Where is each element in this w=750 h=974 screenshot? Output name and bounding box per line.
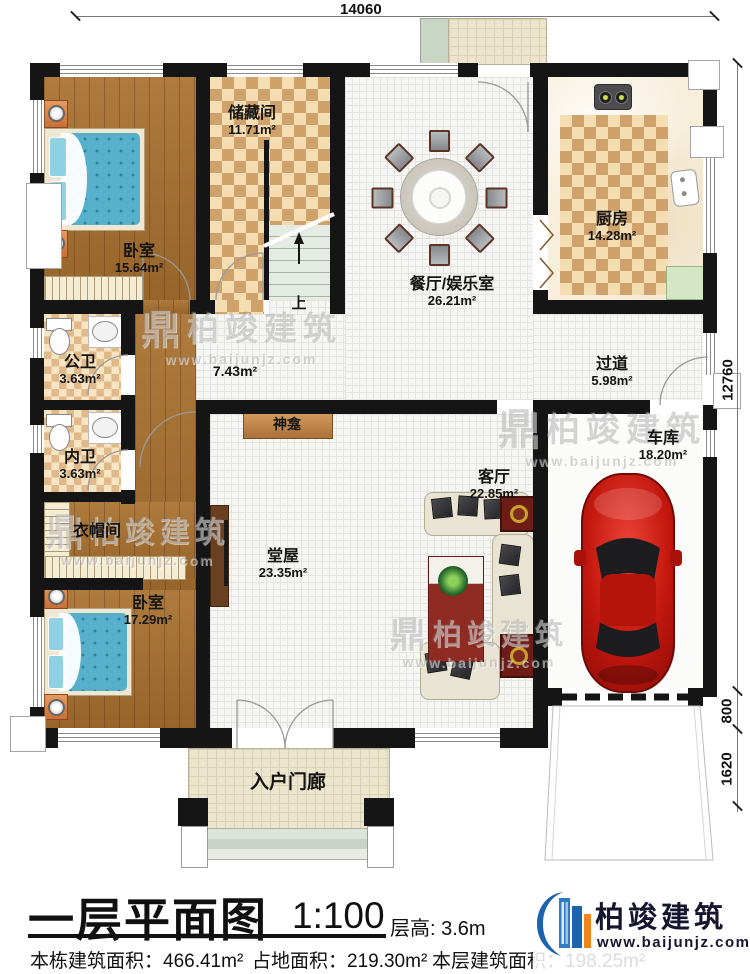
brand-url: www.baijunjz.com — [597, 934, 750, 951]
wall — [533, 77, 548, 215]
wall — [196, 77, 210, 314]
room-name: 厨房 — [588, 211, 636, 229]
window — [227, 63, 303, 77]
dining-chair — [372, 188, 394, 209]
dining-table-center — [429, 187, 451, 209]
garage-door-post — [688, 688, 703, 706]
wall — [30, 358, 44, 425]
exterior-platform — [688, 60, 720, 90]
watermark-glyph-icon: 鼎 — [390, 606, 426, 658]
wall — [303, 63, 370, 77]
garage-door-post — [548, 688, 562, 706]
floor-plan-canvas: 储藏间 11.71m² 卧室 15.64m² 餐厅/娱乐室 26.21m² 厨房… — [0, 0, 750, 974]
stat-land-area: 占地面积：219.30m² — [252, 946, 427, 973]
plan-title: 一层平面图 — [28, 884, 268, 950]
room-label-porch: 入户门廊 — [250, 772, 326, 793]
wall — [533, 300, 703, 314]
wall — [458, 63, 478, 77]
stat-total-area: 本栋建筑面积：466.41m² — [30, 946, 243, 973]
fridge — [666, 266, 704, 300]
wall — [163, 63, 227, 77]
room-label-inner-bath: 内卫 3.63m² — [59, 449, 100, 481]
dimension-right-low: 1620 — [719, 752, 736, 785]
sofa-cushion — [431, 497, 453, 519]
wall — [30, 400, 135, 410]
sink-basin — [92, 321, 118, 342]
window — [703, 333, 717, 375]
pillow — [49, 137, 67, 177]
room-label-bedroom-tl: 卧室 15.64m² — [115, 243, 163, 275]
room-area: 18.20m² — [639, 448, 687, 463]
dining-chair — [486, 188, 508, 209]
pillow — [48, 617, 64, 651]
toilet-inner-bath — [46, 414, 72, 452]
window — [60, 63, 163, 77]
wall — [160, 728, 232, 748]
window — [30, 328, 44, 358]
kitchen-rug — [560, 115, 668, 295]
window — [30, 425, 44, 453]
burner-icon — [615, 91, 628, 104]
dimension-right-mid: 800 — [719, 698, 736, 723]
faucet-dot — [680, 177, 686, 183]
room-name: 车库 — [639, 430, 687, 448]
lamp-icon — [48, 699, 65, 716]
room-area: 7.43m² — [213, 364, 257, 380]
room-label-kitchen: 厨房 14.28m² — [588, 211, 636, 243]
wall — [330, 77, 345, 314]
toilet-bowl — [49, 424, 70, 451]
exterior-platform — [10, 716, 46, 752]
porch-pillar-base — [181, 826, 208, 868]
room-area: 3.63m² — [59, 467, 100, 482]
room-area: 22.85m² — [470, 487, 518, 502]
wall — [30, 300, 143, 314]
wall — [196, 400, 497, 414]
wall — [30, 578, 143, 590]
floor-height: 层高: 3.6m — [390, 912, 486, 941]
room-area: 5.98m² — [591, 374, 632, 389]
room-label-main-hall: 堂屋 23.35m² — [259, 548, 307, 580]
watermark: 鼎 柏竣建筑 www.baijunjz.com — [390, 606, 568, 670]
dimension-line-top — [75, 16, 715, 17]
staircase — [268, 225, 331, 300]
wall — [121, 314, 135, 355]
room-name: 客厅 — [470, 469, 518, 487]
dimension-right-main: 12760 — [720, 359, 737, 401]
room-name: 储藏间 — [228, 105, 276, 123]
wall — [30, 63, 44, 100]
room-label-public-bath: 公卫 3.63m² — [59, 354, 100, 386]
nightstand — [44, 100, 68, 128]
watermark-url-text: www.baijunjz.com — [390, 654, 568, 670]
bay-platform — [26, 183, 62, 269]
brand-logo-icon — [533, 888, 593, 960]
room-name: 卧室 — [124, 595, 172, 613]
porch-steps — [206, 828, 368, 860]
room-area: 15.64m² — [115, 261, 163, 276]
stairs-up-label: 上 — [291, 296, 306, 313]
porch-pillar-base — [367, 826, 394, 868]
room-label-hallway: 过道 5.98m² — [591, 356, 632, 388]
room-name: 堂屋 — [259, 548, 307, 566]
nightstand — [44, 694, 68, 720]
kitchen-sink — [670, 169, 700, 208]
watermark-glyph-icon: 鼎 — [498, 396, 540, 457]
room-label-bedroom-bl: 卧室 17.29m² — [124, 595, 172, 627]
room-name: 卧室 — [115, 243, 163, 261]
toilet-public-bath — [46, 318, 72, 356]
title-underline — [28, 934, 386, 938]
brand-logo: 柏竣建筑 www.baijunjz.com — [533, 886, 748, 970]
room-label-cloakroom: 衣帽间 — [73, 523, 121, 541]
wall — [30, 492, 135, 502]
room-area: 11.71m² — [228, 123, 276, 138]
room-name: 神龛 — [273, 417, 301, 433]
room-label-storage: 储藏间 11.71m² — [228, 105, 276, 137]
floor-dining — [345, 77, 533, 400]
porch-pillar — [364, 798, 394, 826]
watermark-brand-text: 柏竣建筑 — [432, 611, 568, 653]
back-porch-tile — [448, 18, 547, 65]
room-area: 17.29m² — [124, 613, 172, 628]
dimension-top-width: 14060 — [340, 1, 382, 18]
window — [58, 731, 160, 745]
room-name: 入户门廊 — [250, 772, 326, 793]
brand-name: 柏竣建筑 — [595, 894, 727, 936]
room-name: 过道 — [591, 356, 632, 374]
porch-pillar — [178, 798, 208, 826]
car — [572, 470, 684, 696]
room-name: 衣帽间 — [73, 523, 121, 541]
room-name: 内卫 — [59, 449, 100, 467]
room-label-living: 客厅 22.85m² — [470, 469, 518, 501]
window — [30, 617, 44, 707]
room-area: 14.28m² — [588, 229, 636, 244]
lamp-icon — [48, 588, 65, 605]
room-name: 餐厅/娱乐室 — [410, 276, 494, 294]
burner-icon — [599, 91, 612, 104]
room-area: 26.21m² — [410, 294, 494, 309]
watermark-url-text: www.baijunjz.com — [46, 552, 229, 568]
wall — [30, 453, 44, 617]
room-label-dining: 餐厅/娱乐室 26.21m² — [410, 276, 494, 308]
room-area: 23.35m² — [259, 566, 307, 581]
room-label-garage: 车库 18.20m² — [639, 430, 687, 462]
wall — [196, 414, 210, 728]
watermark: 鼎 柏竣建筑 www.baijunjz.com — [140, 297, 342, 367]
sink-basin — [92, 417, 118, 438]
room-name: 公卫 — [59, 354, 100, 372]
window — [415, 731, 500, 745]
wall — [333, 728, 415, 748]
wardrobe-bedroom-tl — [44, 276, 143, 302]
faucet-dot — [681, 191, 687, 197]
room-area: 3.63m² — [59, 372, 100, 387]
wall — [703, 457, 717, 697]
watermark-brand-text: 柏竣建筑 — [186, 302, 342, 350]
dining-chair — [429, 244, 450, 266]
back-porch-panel — [420, 18, 450, 65]
window — [370, 63, 458, 77]
sofa-cushion — [499, 544, 522, 567]
wall — [264, 140, 269, 300]
stairs-up-text: 上 — [291, 296, 306, 313]
window — [30, 100, 44, 173]
corridor-area-label: 7.43m² — [213, 364, 257, 380]
toilet-bowl — [49, 328, 70, 355]
wall — [703, 253, 717, 333]
plant — [438, 566, 468, 596]
shrine-label: 神龛 — [273, 417, 301, 433]
dining-chair — [429, 130, 450, 152]
lamp-icon — [48, 105, 65, 122]
exterior-platform — [690, 126, 724, 158]
gold-emblem-icon — [510, 505, 528, 523]
dimension-line-right — [737, 63, 738, 812]
bed-bedroom-bl — [44, 608, 132, 696]
stove — [594, 84, 632, 110]
sofa-cushion — [499, 574, 521, 596]
plan-scale: 1:100 — [292, 895, 385, 937]
watermark-glyph-icon: 鼎 — [140, 297, 180, 355]
pillow — [48, 655, 64, 689]
